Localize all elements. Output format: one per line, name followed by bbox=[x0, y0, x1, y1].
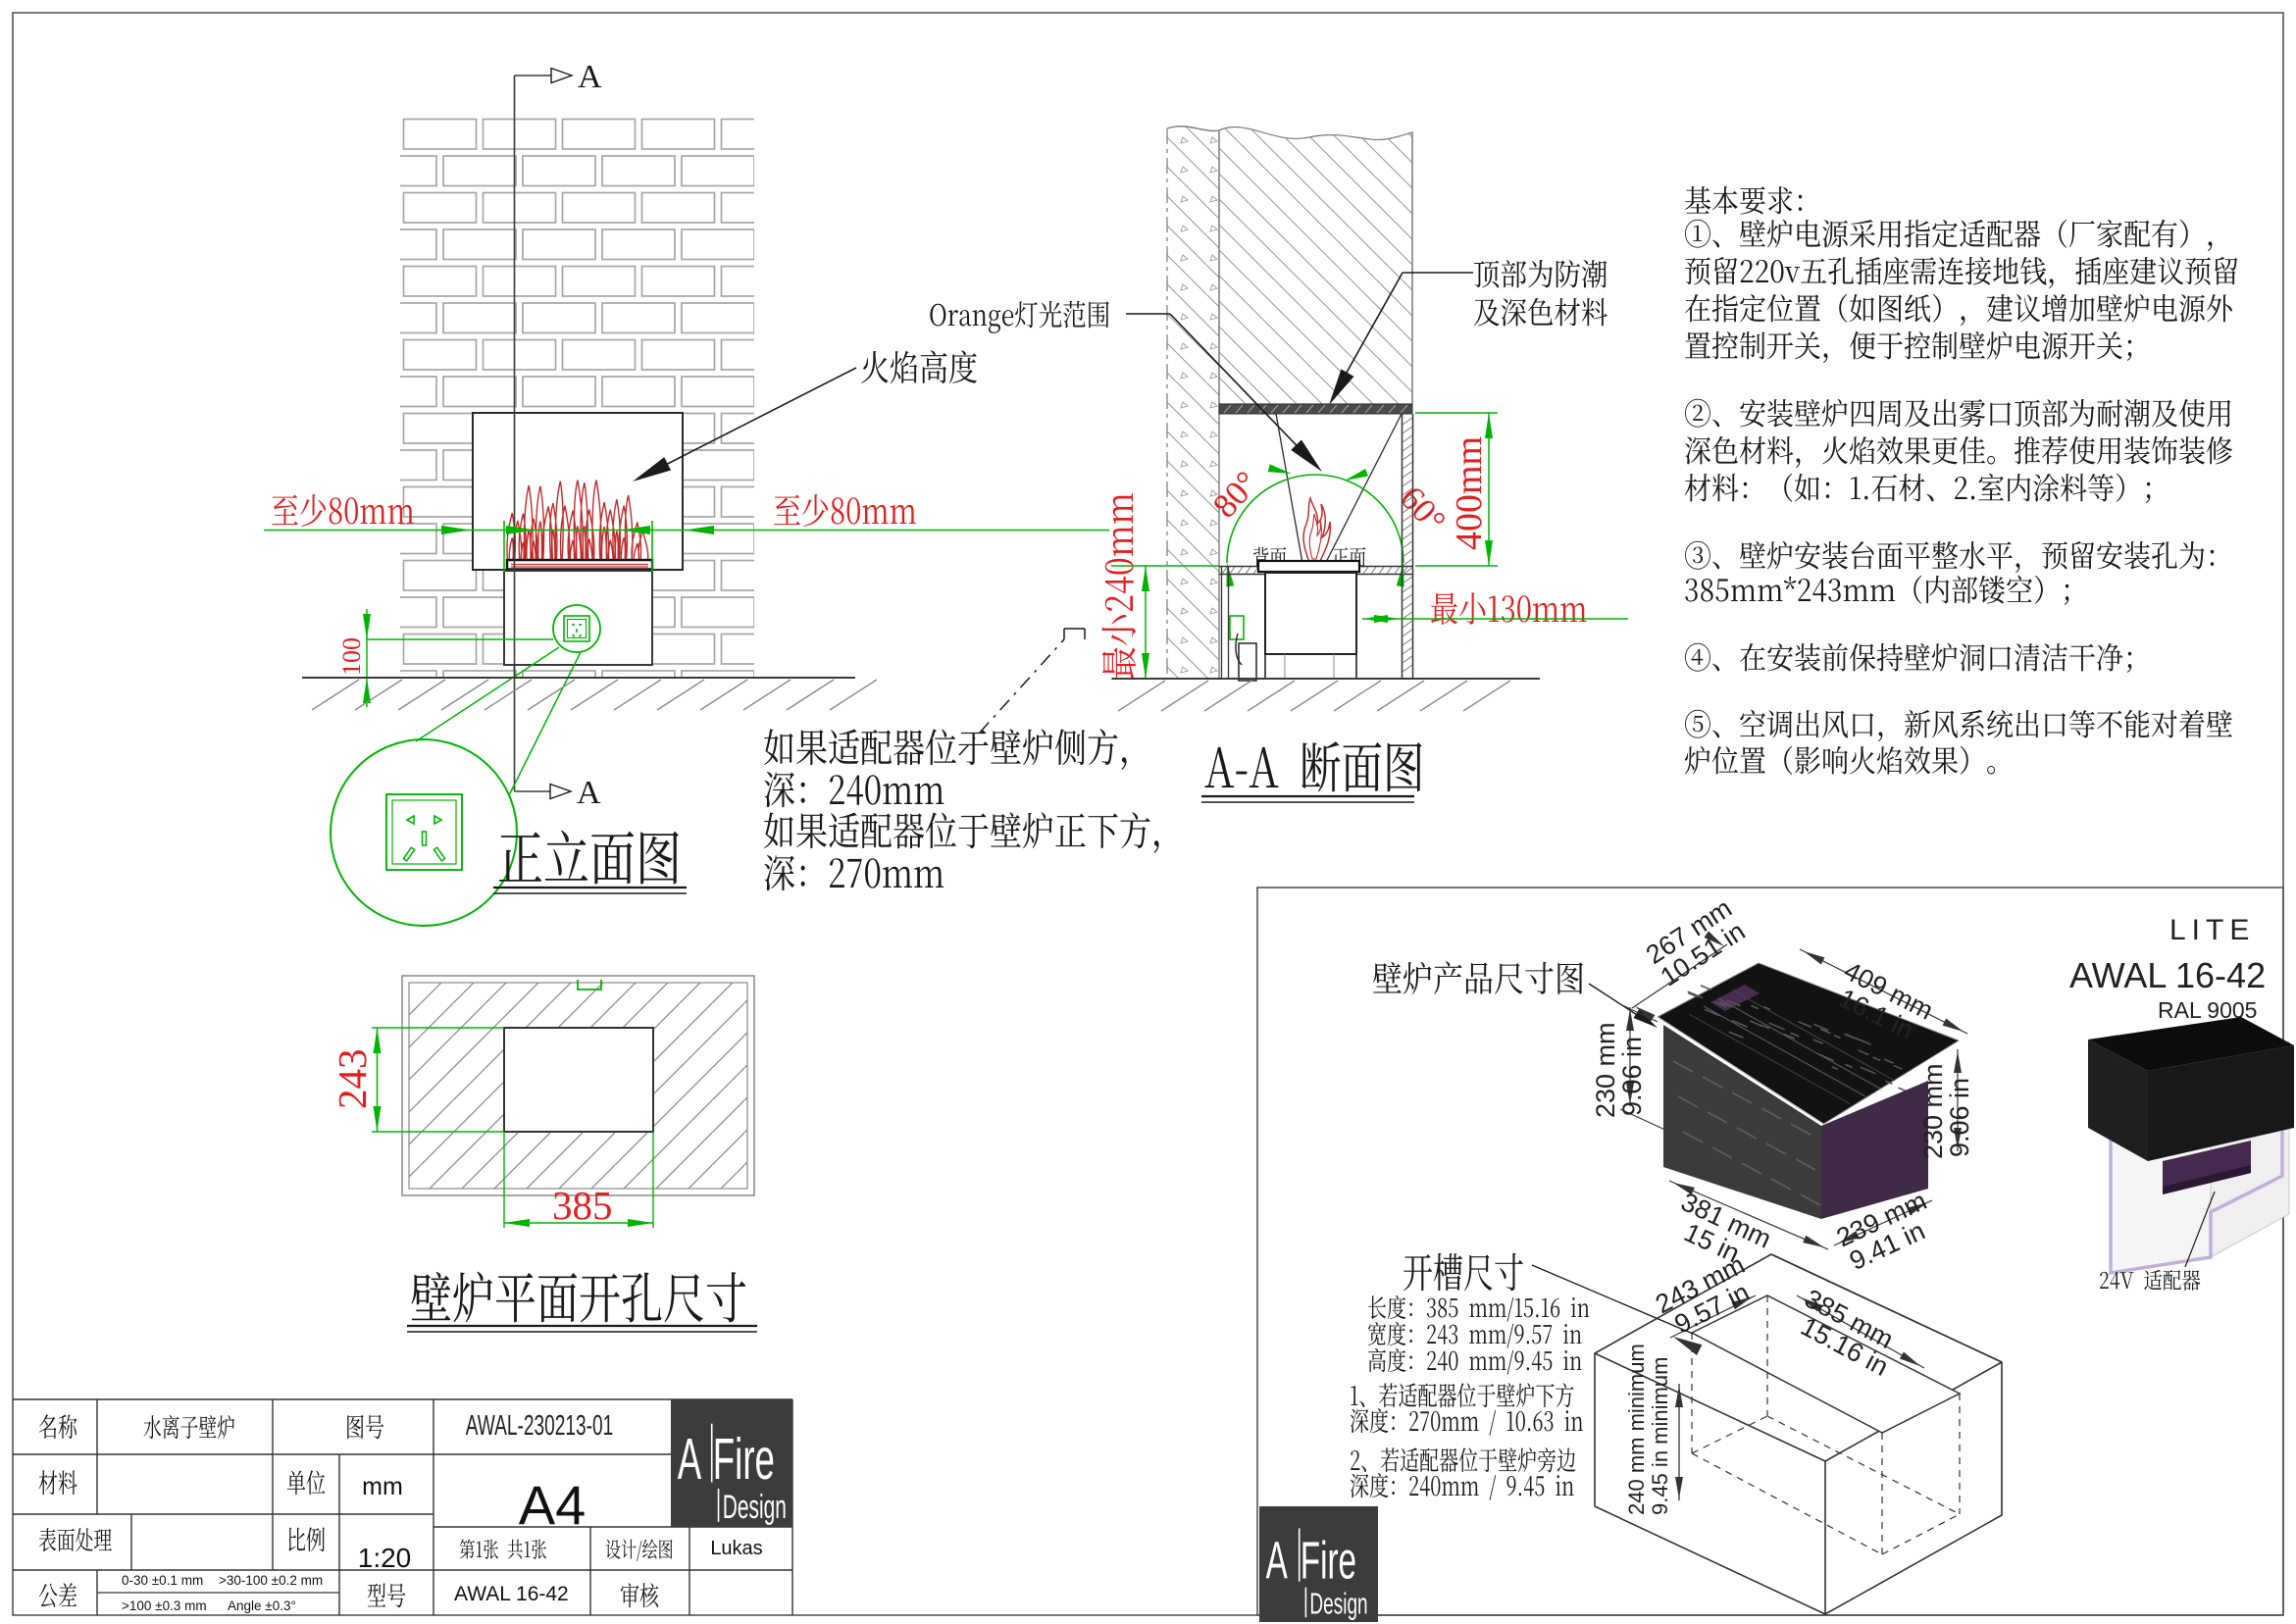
svg-text:Design: Design bbox=[723, 1489, 787, 1525]
svg-text:0-30 ±0.1 mm: 0-30 ±0.1 mm bbox=[122, 1573, 203, 1588]
svg-text:Fire: Fire bbox=[1301, 1533, 1356, 1591]
svg-text:243: 243 bbox=[330, 1049, 375, 1110]
svg-text:A: A bbox=[577, 775, 601, 811]
svg-text:400mm: 400mm bbox=[1449, 436, 1490, 550]
svg-text:240 mm minimum: 240 mm minimum bbox=[1624, 1344, 1649, 1515]
svg-text:Fire: Fire bbox=[713, 1427, 775, 1492]
svg-text:A: A bbox=[678, 1427, 702, 1492]
svg-text:1:20: 1:20 bbox=[358, 1543, 412, 1573]
svg-text:AWAL-230213-01: AWAL-230213-01 bbox=[466, 1410, 614, 1442]
svg-text:Lukas: Lukas bbox=[710, 1538, 762, 1559]
svg-text:A4: A4 bbox=[519, 1474, 587, 1536]
svg-text:385: 385 bbox=[552, 1183, 613, 1228]
svg-text:mm: mm bbox=[362, 1473, 403, 1500]
svg-text:>30-100 ±0.2 mm: >30-100 ±0.2 mm bbox=[219, 1573, 323, 1588]
svg-text:A: A bbox=[578, 59, 602, 95]
svg-text:A: A bbox=[1266, 1533, 1288, 1591]
svg-text:Angle ±0.3°: Angle ±0.3° bbox=[228, 1599, 296, 1613]
svg-text:9.45 in minimum: 9.45 in minimum bbox=[1648, 1357, 1672, 1515]
svg-text:LITE: LITE bbox=[2169, 914, 2255, 946]
svg-text:230 mm: 230 mm bbox=[1591, 1022, 1620, 1118]
svg-text:230 mm: 230 mm bbox=[1918, 1063, 1948, 1159]
svg-text:100: 100 bbox=[337, 637, 366, 676]
svg-text:>100 ±0.3 mm: >100 ±0.3 mm bbox=[122, 1599, 207, 1613]
svg-text:Design: Design bbox=[1309, 1588, 1367, 1621]
svg-text:9.06 in: 9.06 in bbox=[1945, 1078, 1974, 1157]
svg-text:AWAL 16-42: AWAL 16-42 bbox=[2069, 955, 2266, 995]
svg-text:AWAL 16-42: AWAL 16-42 bbox=[454, 1583, 569, 1605]
svg-text:9.06 in: 9.06 in bbox=[1617, 1037, 1647, 1116]
